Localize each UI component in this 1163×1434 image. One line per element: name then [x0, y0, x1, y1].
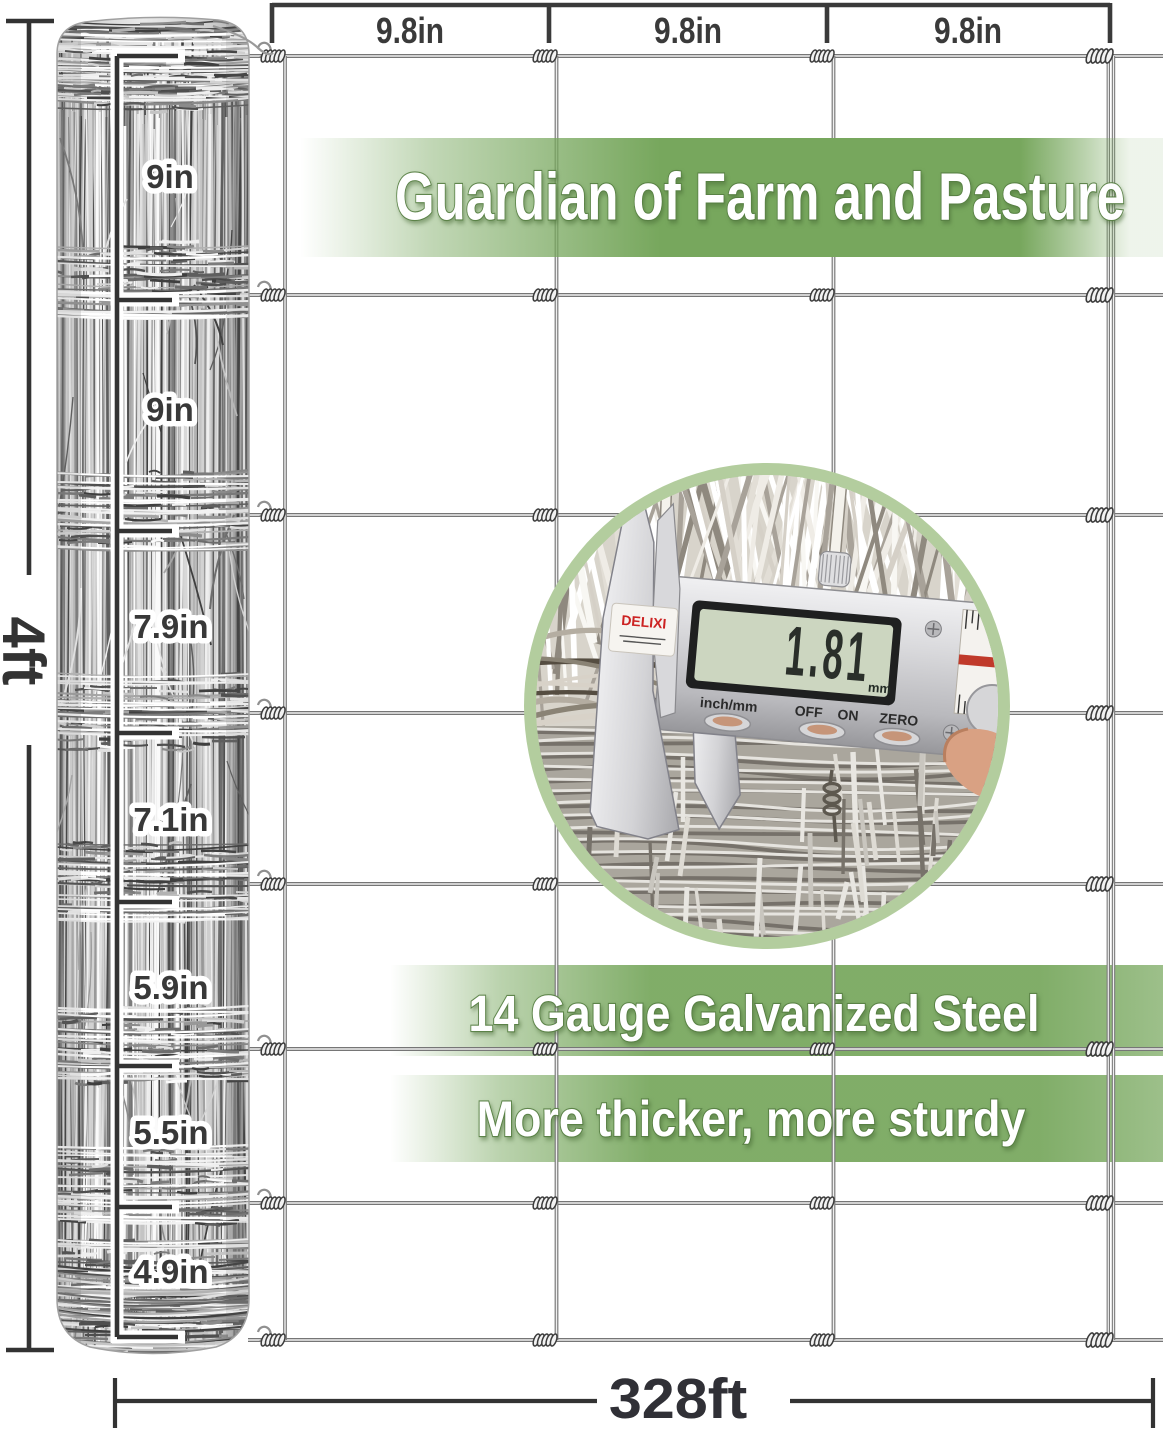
svg-text:7.9in: 7.9in — [133, 608, 208, 645]
svg-text:4.9in: 4.9in — [133, 1253, 208, 1290]
svg-text:9in: 9in — [146, 158, 194, 195]
svg-text:9.8in: 9.8in — [376, 11, 444, 51]
svg-text:9in: 9in — [146, 391, 194, 428]
svg-text:7.1in: 7.1in — [133, 801, 208, 838]
svg-text:5.5in: 5.5in — [133, 1114, 208, 1151]
svg-text:5.9in: 5.9in — [133, 969, 208, 1006]
svg-text:9.8in: 9.8in — [934, 11, 1002, 51]
svg-text:4ft: 4ft — [0, 617, 56, 686]
svg-text:9.8in: 9.8in — [654, 11, 722, 51]
svg-text:328ft: 328ft — [609, 1367, 747, 1431]
